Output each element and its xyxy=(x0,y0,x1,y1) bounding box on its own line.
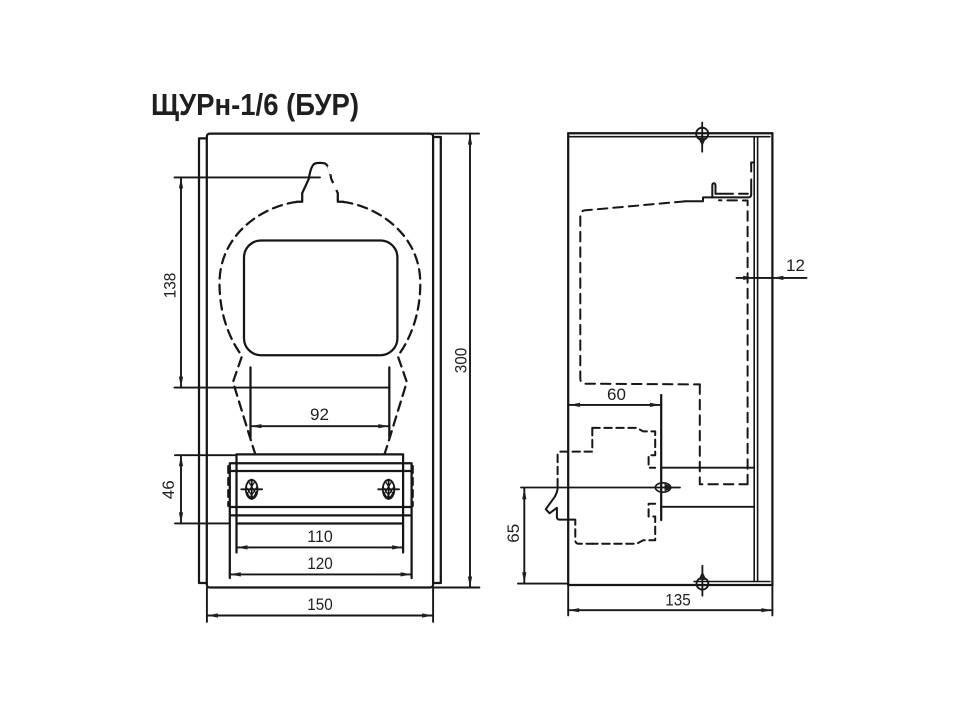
svg-text:92: 92 xyxy=(310,405,329,424)
svg-text:138: 138 xyxy=(161,273,180,299)
svg-text:135: 135 xyxy=(665,591,691,610)
svg-text:110: 110 xyxy=(307,527,333,546)
svg-text:60: 60 xyxy=(607,385,626,404)
svg-text:65: 65 xyxy=(504,524,523,543)
svg-text:12: 12 xyxy=(786,256,805,275)
svg-text:46: 46 xyxy=(159,480,178,499)
svg-text:120: 120 xyxy=(307,554,333,573)
svg-text:300: 300 xyxy=(452,348,471,374)
svg-text:150: 150 xyxy=(307,595,333,614)
svg-text:ЩУРн-1/6 (БУР): ЩУРн-1/6 (БУР) xyxy=(151,87,359,122)
